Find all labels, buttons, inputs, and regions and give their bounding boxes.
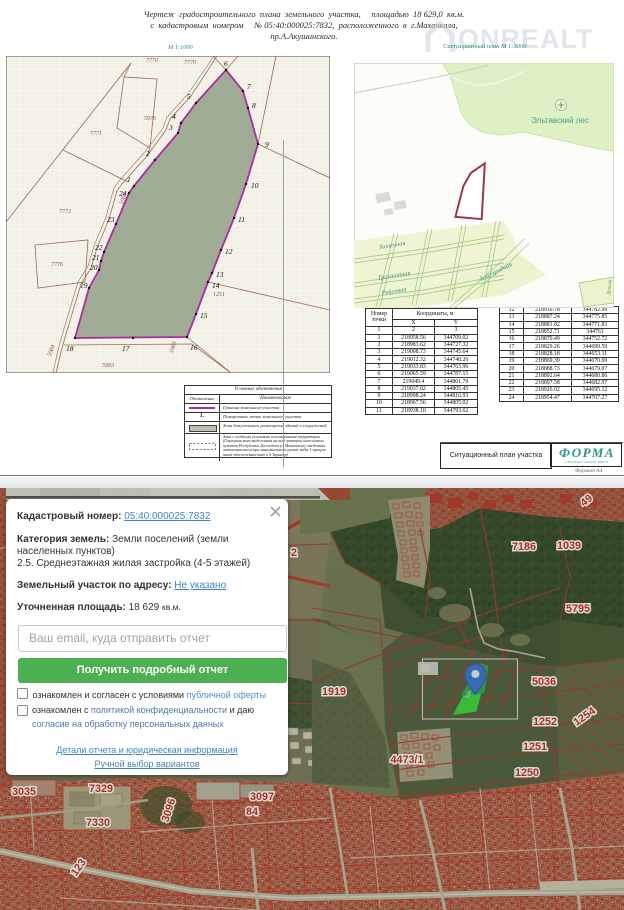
svg-text:7776: 7776 <box>51 262 63 268</box>
svg-text:14: 14 <box>212 281 220 290</box>
svg-text:6: 6 <box>224 59 228 68</box>
svg-text:7770: 7770 <box>146 58 158 64</box>
svg-text:1: 1 <box>127 175 131 184</box>
svg-text:8: 8 <box>252 101 256 110</box>
svg-text:7770: 7770 <box>184 60 196 66</box>
svg-text:19: 19 <box>80 281 88 290</box>
svg-text:Эльтавский лес: Эльтавский лес <box>531 116 589 125</box>
svg-text:7: 7 <box>247 82 251 91</box>
svg-text:2: 2 <box>146 149 150 158</box>
svg-text:АРХИТЕКТУРНОЕ БЮРО: АРХИТЕКТУРНОЕ БЮРО <box>565 460 608 464</box>
svg-text:5983: 5983 <box>102 363 114 369</box>
svg-text:20: 20 <box>90 263 98 272</box>
svg-text:7772: 7772 <box>59 209 71 215</box>
svg-text:9: 9 <box>265 140 269 149</box>
svg-text:4: 4 <box>172 112 176 121</box>
svg-text:5: 5 <box>187 92 191 101</box>
svg-text:22: 22 <box>95 243 103 252</box>
svg-text:16: 16 <box>190 343 198 352</box>
svg-text:15: 15 <box>200 311 208 320</box>
svg-text:11: 11 <box>238 215 245 224</box>
svg-text:18: 18 <box>66 344 74 353</box>
svg-text:12: 12 <box>225 247 233 256</box>
svg-text:1251: 1251 <box>213 292 225 298</box>
svg-text:21: 21 <box>92 253 100 262</box>
svg-text:ФОРМА: ФОРМА <box>559 445 615 460</box>
svg-text:10: 10 <box>251 181 259 190</box>
svg-text:13: 13 <box>216 270 224 279</box>
svg-text:3: 3 <box>168 123 173 132</box>
svg-text:23: 23 <box>107 215 115 224</box>
svg-text:17: 17 <box>122 344 130 353</box>
svg-text:7771: 7771 <box>90 131 102 137</box>
svg-text:5976: 5976 <box>144 116 156 122</box>
